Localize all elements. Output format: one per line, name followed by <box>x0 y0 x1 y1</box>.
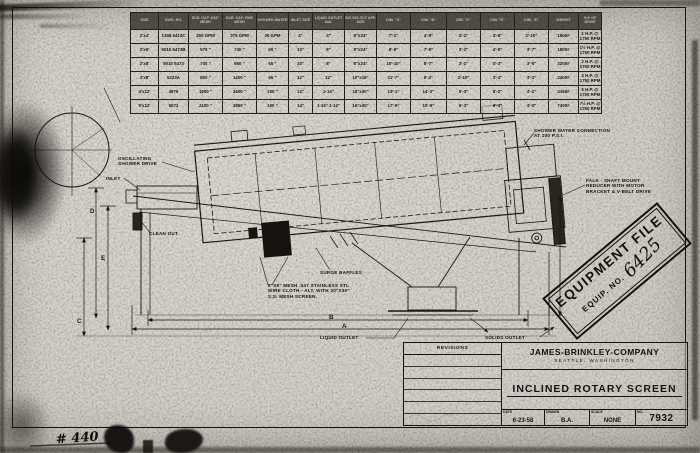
spec-cell: 10" <box>289 44 313 58</box>
spec-cell: 1348 5413C <box>159 30 189 44</box>
spec-cell: 1½ H.P. @ 1750 RPM <box>579 44 602 58</box>
date-cell: DATE 6-23-58 <box>502 410 545 425</box>
scale-value: NONE <box>604 418 621 424</box>
spec-cell: 800 " <box>189 72 223 86</box>
spec-header-cell: SCR. CAP. 3/16" MESH <box>189 13 223 30</box>
spec-cell: 3 H.P. @ 1750 RPM <box>579 72 602 86</box>
spec-cell: 8" <box>313 58 345 72</box>
callout-surge-baffles: SURGE BAFFLES <box>320 270 362 275</box>
spec-cell: 3'-1" <box>447 30 481 44</box>
spec-cell: 2 H.P. @ 1750 RPM <box>579 58 602 72</box>
spec-cell: 30 GPM <box>257 30 289 44</box>
spec-cell: 250 GPM <box>189 30 223 44</box>
spec-row: 4'x12'49761500 "2600 "100 "12"2-14"18"x3… <box>131 86 602 100</box>
spec-row: 2'x4'1348 5413C250 GPM375 GPM30 GPM4"4"8… <box>131 30 602 44</box>
spec-cell: 6015 5473B <box>159 44 189 58</box>
spec-header-cell: DIM. "B" <box>411 13 447 30</box>
spec-cell: 1 H.P. @ 1750 RPM <box>579 30 602 44</box>
drawn-cell: DRAWN B.A. <box>545 410 590 425</box>
spec-row: 2'x8'5010 5473700 "950 "65 "10"8"8"x24"1… <box>131 58 602 72</box>
spec-cell: 100 " <box>257 86 289 100</box>
spec-cell: 12" <box>289 72 313 86</box>
inlet-assembly <box>126 186 197 230</box>
spec-header-cell: DIM. "D" <box>481 13 515 30</box>
drive-assembly <box>502 140 567 248</box>
revision-row <box>404 402 501 414</box>
callout-reducer: FALK - SHAFT MOUNT REDUCER WITH MOTOR BR… <box>586 178 651 194</box>
spec-cell: 8" <box>313 44 345 58</box>
revision-row <box>404 355 501 367</box>
revision-row <box>404 379 501 391</box>
spec-cell: 575 " <box>189 44 223 58</box>
company-block: JAMES-BRINKLEY-COMPANY SEATTLE, WASHINGT… <box>502 343 687 370</box>
spec-cell: 4'-0" <box>515 100 549 114</box>
spec-cell: 2100 " <box>189 100 223 114</box>
spec-cell: 13'-1" <box>377 86 411 100</box>
spec-cell: 5 H.P. @ 1750 RPM <box>579 86 602 100</box>
spec-cell: 700 " <box>189 58 223 72</box>
spec-header-cell: DIM. "A" <box>377 13 411 30</box>
dim-label-b: B <box>329 314 333 321</box>
spec-cell: 15'-9" <box>411 100 447 114</box>
callout-liquid-outlet: LIQUID OUTLET <box>320 335 358 340</box>
spec-cell: 14'-2" <box>411 86 447 100</box>
drawing-number-value: 7932 <box>649 413 673 424</box>
date-value: 6-23-58 <box>513 418 534 424</box>
spec-cell: 65 " <box>257 72 289 86</box>
scanned-drawing-sheet: SIZEDWG. NO.SCR. CAP. 3/16" MESHSCR. CAP… <box>0 0 700 453</box>
spec-row: 3'x8'5223A800 "1400 "65 "12"12"10"x18"11… <box>131 72 602 86</box>
spec-header-row: SIZEDWG. NO.SCR. CAP. 3/16" MESHSCR. CAP… <box>131 13 602 30</box>
spec-cell: 4" <box>289 30 313 44</box>
spec-cell: 4'-3" <box>481 58 515 72</box>
spec-cell: 5071 <box>159 100 189 114</box>
drawing-title: INCLINED ROTARY SCREEN <box>507 383 681 397</box>
spec-cell: 12" <box>289 86 313 100</box>
spec-cell: 1500 " <box>189 86 223 100</box>
revision-row <box>404 367 501 379</box>
spec-header-cell: LIQUID OUTLET DIA. <box>313 13 345 30</box>
title-block-meta-row: DATE 6-23-58 DRAWN B.A. SCALE NONE NO. 7… <box>502 409 687 425</box>
rotary-drum <box>193 103 524 242</box>
dimension-lines <box>76 188 560 336</box>
spec-cell: 1-16" 1-12" <box>313 100 345 114</box>
dim-label-a: A <box>342 323 346 330</box>
handwritten-note: # 440 <box>56 430 100 448</box>
spec-cell: 7'-5" <box>411 44 447 58</box>
spec-header-cell: WEIGHT <box>549 13 579 30</box>
spec-cell: 16"x30" <box>345 100 377 114</box>
spec-cell: 8"x24" <box>345 58 377 72</box>
spec-cell: 5223A <box>159 72 189 86</box>
spec-cell: 3'-2" <box>515 72 549 86</box>
spec-cell: 2200# <box>549 58 579 72</box>
spec-cell: 2400# <box>549 72 579 86</box>
callout-shower-connection: SHOWER WATER CONNECTION AT 100 P.S.I. <box>534 128 610 139</box>
spec-cell: 4" <box>313 30 345 44</box>
spec-header-cell: DWG. NO. <box>159 13 189 30</box>
dim-label-c: C <box>77 318 81 325</box>
spec-cell: 5'x12' <box>131 100 159 114</box>
date-label: DATE <box>503 410 512 414</box>
spec-cell: 950 " <box>223 58 257 72</box>
title-block: REVISIONS JAMES-BRINKLEY-COMPANY SEATTLE… <box>403 342 688 426</box>
callout-oscillating-shower: OSCILLATING SHOWER DRIVE <box>118 156 157 167</box>
revisions-header: REVISIONS <box>404 343 501 355</box>
spec-cell: 4160# <box>549 86 579 100</box>
spec-cell: 10'-10" <box>377 58 411 72</box>
spec-cell: 3'-7" <box>515 44 549 58</box>
spec-cell: 6'-3" <box>447 100 481 114</box>
dim-label-d: D <box>90 208 94 215</box>
spec-header-cell: DIM. "E" <box>515 13 549 30</box>
spec-cell: 4'-5" <box>481 44 515 58</box>
spec-cell: 9'-2" <box>411 72 447 86</box>
company-city: SEATTLE, WASHINGTON <box>502 358 687 363</box>
spec-cell: 8'-2" <box>481 86 515 100</box>
spec-cell: 5010 5473 <box>159 58 189 72</box>
spec-cell: 7400# <box>549 100 579 114</box>
spec-header-cell: INLET SIZE <box>289 13 313 30</box>
spec-cell: 4'-1" <box>515 86 549 100</box>
spec-cell: 1400 " <box>223 72 257 86</box>
dim-label-e: E <box>101 255 105 262</box>
spec-cell: 18"x30" <box>345 86 377 100</box>
screen-panel <box>249 221 358 257</box>
callout-inlet: INLET <box>106 176 121 181</box>
spec-header-cell: SHOWER WATER <box>257 13 289 30</box>
spec-cell: 8'-9" <box>377 44 411 58</box>
spec-cell: 8"x24" <box>345 44 377 58</box>
spec-cell: 65 " <box>257 58 289 72</box>
spec-header-cell: SOLIDS OUT APP. SIZE <box>345 13 377 30</box>
spec-row: 2'x6'6015 5473B575 "740 "50 "10"8"8"x24"… <box>131 44 602 58</box>
scale-label: SCALE <box>591 410 603 414</box>
spec-cell: 3'x8' <box>131 72 159 86</box>
spec-cell: 3'-1" <box>447 58 481 72</box>
spec-header-cell: DIM. "C" <box>447 13 481 30</box>
spec-cell: 2860 " <box>223 100 257 114</box>
spec-cell: 17'-9" <box>377 100 411 114</box>
spec-cell: 5'-3" <box>447 86 481 100</box>
spec-cell: 2600 " <box>223 86 257 100</box>
spec-cell: 3'-3" <box>481 72 515 86</box>
spec-cell: 4976 <box>159 86 189 100</box>
spec-header-cell: H.P. OF DRIVE <box>579 13 602 30</box>
liquid-hopper <box>352 237 478 315</box>
drawn-label: DRAWN <box>546 410 559 414</box>
spec-cell: 740 " <box>223 44 257 58</box>
spec-header-cell: SCR. CAP. FINE MESH <box>223 13 257 30</box>
spec-cell: 10" <box>289 58 313 72</box>
spec-cell: 8'-4" <box>481 100 515 114</box>
drawn-value: B.A. <box>561 418 573 424</box>
spec-cell: 8'-7" <box>411 58 447 72</box>
spec-cell: 7½ H.P. @ 1750 RPM <box>579 100 602 114</box>
spec-cell: 375 GPM <box>223 30 257 44</box>
spec-cell: 12" <box>313 72 345 86</box>
drawing-number-cell: NO. 7932 <box>636 410 687 425</box>
spec-cell: 10"x18" <box>345 72 377 86</box>
spec-cell: 2-14" <box>313 86 345 100</box>
spec-header-cell: SIZE <box>131 13 159 30</box>
spec-cell: 4'x12' <box>131 86 159 100</box>
spec-table: SIZEDWG. NO.SCR. CAP. 3/16" MESHSCR. CAP… <box>130 12 602 114</box>
scale-cell: SCALE NONE <box>590 410 636 425</box>
spec-cell: 8"x24" <box>345 30 377 44</box>
spec-cell: 3'-10" <box>447 72 481 86</box>
spec-row: 5'x12'50712100 "2860 "100 "14"1-16" 1-12… <box>131 100 602 114</box>
spec-cell: 7'-1" <box>377 30 411 44</box>
spec-cell: 3'-2" <box>447 44 481 58</box>
spec-cell: 3'-9" <box>481 30 515 44</box>
spec-cell: 1800# <box>549 44 579 58</box>
callout-mesh-note: 8"x8" MESH .047 STAINLESS STL WIRE CLOTH… <box>268 283 350 299</box>
drawing-number-label: NO. <box>637 410 643 414</box>
spec-cell: 1600# <box>549 30 579 44</box>
company-name: JAMES-BRINKLEY-COMPANY <box>502 347 687 357</box>
revision-row <box>404 414 501 425</box>
spec-cell: 100 " <box>257 100 289 114</box>
spec-cell: 2'-10" <box>515 30 549 44</box>
spec-cell: 2'x6' <box>131 44 159 58</box>
title-block-main: JAMES-BRINKLEY-COMPANY SEATTLE, WASHINGT… <box>502 343 687 425</box>
spec-cell: 2'x4' <box>131 30 159 44</box>
spec-cell: 50 " <box>257 44 289 58</box>
spec-cell: 4'-9" <box>411 30 447 44</box>
callout-solids-outlet: SOLIDS OUTLET <box>485 335 525 340</box>
trough <box>133 196 566 252</box>
spec-cell: 3'-5" <box>515 58 549 72</box>
revision-row <box>404 390 501 402</box>
spec-cell: 11'-7" <box>377 72 411 86</box>
spec-cell: 14" <box>289 100 313 114</box>
callout-clean-out: CLEAN OUT <box>149 231 178 236</box>
spec-cell: 2'x8' <box>131 58 159 72</box>
leader-lines <box>124 133 585 338</box>
revisions-panel: REVISIONS <box>404 343 502 425</box>
